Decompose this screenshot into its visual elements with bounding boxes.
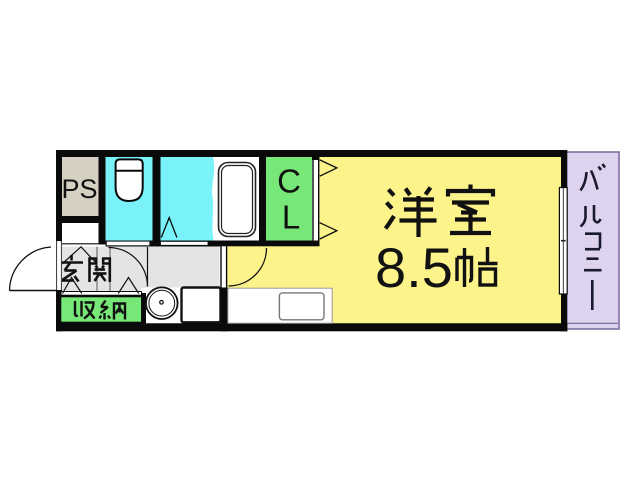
svg-text:PS: PS <box>61 174 97 204</box>
svg-text:8.5: 8.5 <box>375 236 453 299</box>
svg-text:C: C <box>277 163 301 200</box>
svg-text:L: L <box>282 199 300 236</box>
